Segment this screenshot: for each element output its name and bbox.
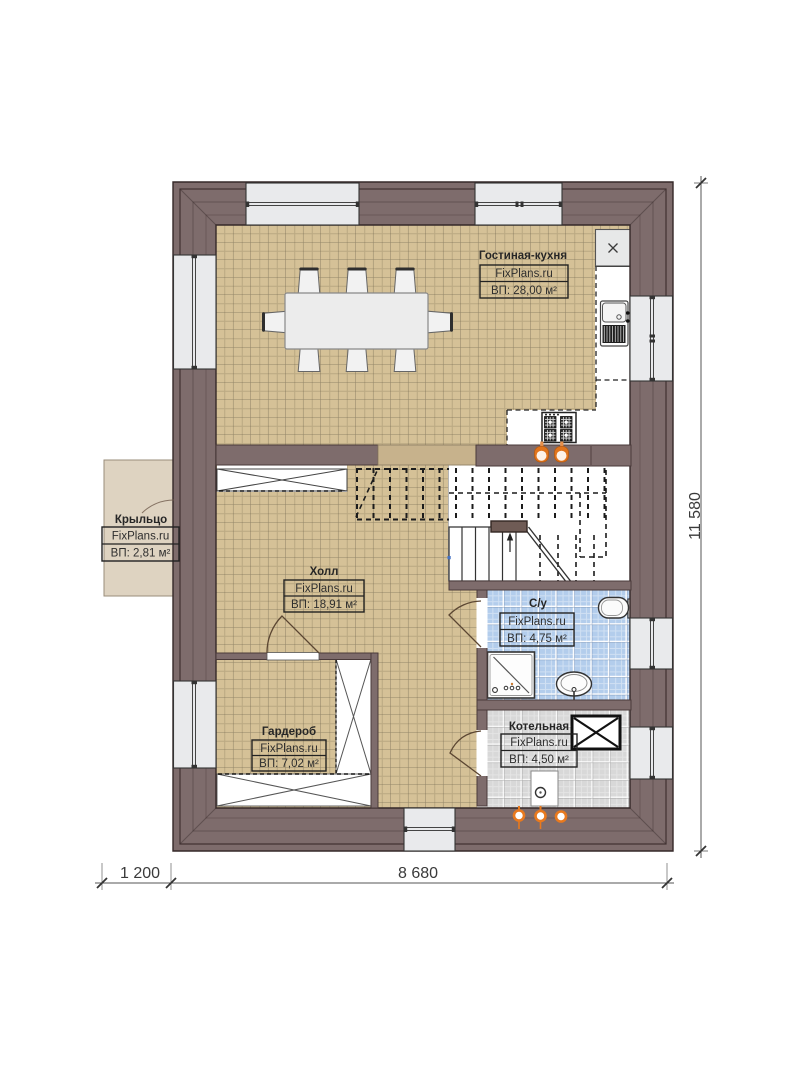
svg-text:ВП: 2,81 м²: ВП: 2,81 м²: [111, 548, 171, 560]
svg-text:FixPlans.ru: FixPlans.ru: [295, 583, 353, 595]
svg-text:FixPlans.ru: FixPlans.ru: [112, 531, 170, 543]
svg-text:С/у: С/у: [529, 598, 548, 610]
svg-text:ВП: 18,91 м²: ВП: 18,91 м²: [291, 599, 357, 611]
svg-text:ВП: 7,02 м²: ВП: 7,02 м²: [259, 758, 319, 770]
svg-text:11 580: 11 580: [687, 492, 704, 540]
svg-text:Гардероб: Гардероб: [262, 726, 316, 738]
svg-text:ВП: 4,75 м²: ВП: 4,75 м²: [507, 633, 567, 645]
svg-text:Гостиная-кухня: Гостиная-кухня: [479, 250, 567, 262]
svg-text:FixPlans.ru: FixPlans.ru: [260, 743, 318, 755]
svg-text:FixPlans.ru: FixPlans.ru: [510, 737, 568, 749]
svg-text:1 200: 1 200: [120, 865, 160, 882]
svg-text:8 680: 8 680: [398, 865, 438, 882]
svg-text:ВП: 28,00 м²: ВП: 28,00 м²: [491, 285, 557, 297]
svg-text:Холл: Холл: [310, 566, 339, 578]
svg-text:Котельная: Котельная: [509, 721, 569, 733]
svg-text:Крыльцо: Крыльцо: [115, 514, 167, 526]
svg-text:FixPlans.ru: FixPlans.ru: [508, 616, 566, 628]
svg-text:FixPlans.ru: FixPlans.ru: [495, 268, 553, 280]
svg-text:ВП: 4,50 м²: ВП: 4,50 м²: [509, 754, 569, 766]
